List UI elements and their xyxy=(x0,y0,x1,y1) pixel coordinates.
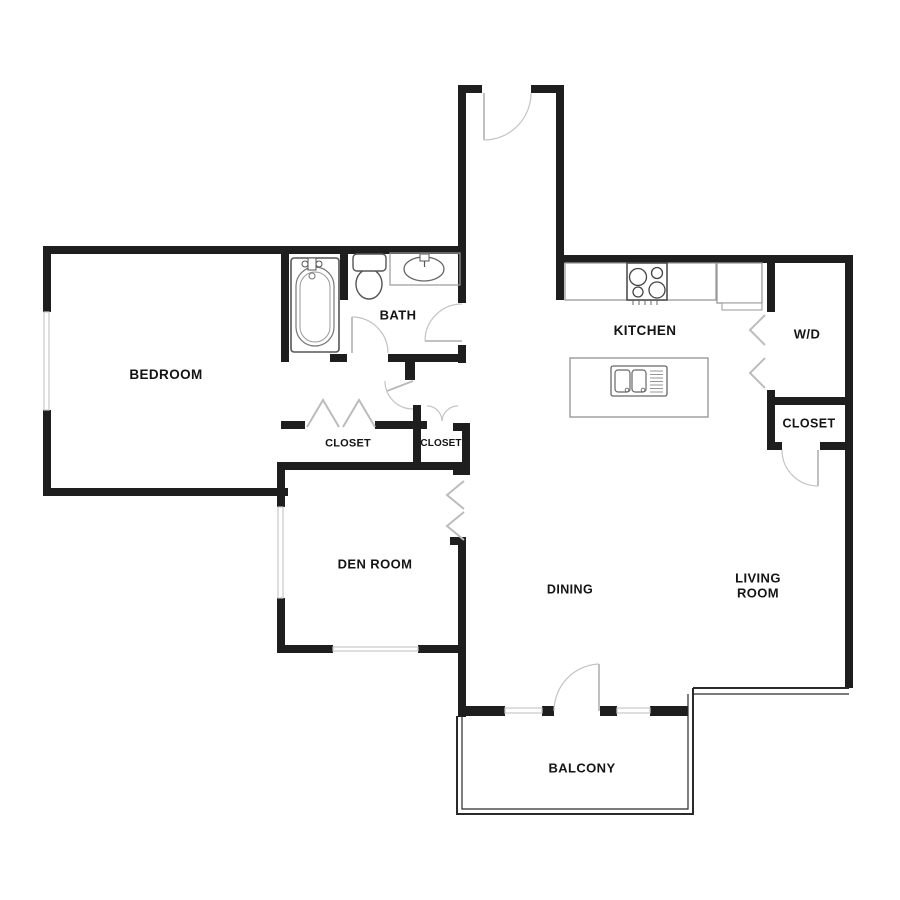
room-label-closet-hall-left: CLOSET xyxy=(325,438,371,451)
closet-left-bifold xyxy=(343,400,375,427)
den-window-west xyxy=(278,507,283,598)
balcony-door xyxy=(554,664,599,711)
toilet-icon xyxy=(353,254,386,299)
dining-window-right xyxy=(617,708,650,713)
room-label-balcony: BALCONY xyxy=(548,760,615,775)
room-label-bedroom: BEDROOM xyxy=(129,367,202,383)
room-label-wd: W/D xyxy=(794,326,820,341)
room-label-kitchen: KITCHEN xyxy=(614,323,677,339)
bath-corridor-door xyxy=(425,304,462,341)
floor-plan: BEDROOM BATH KITCHEN W/D CLOSET CLOSET C… xyxy=(0,0,900,900)
wd-bifold xyxy=(750,358,765,388)
hall-passage-door xyxy=(385,381,413,409)
floor-plan-drawing xyxy=(0,0,900,900)
refrigerator-icon xyxy=(717,263,762,310)
entry-door xyxy=(484,93,531,140)
se-window-wall xyxy=(693,688,849,694)
island-sink-icon xyxy=(611,366,667,396)
room-label-closet-hall-right: CLOSET xyxy=(420,438,461,450)
stove-icon xyxy=(627,263,667,305)
den-window-south xyxy=(333,647,418,651)
room-label-bath: BATH xyxy=(380,307,417,322)
dining-window-left xyxy=(505,708,542,713)
bathroom-sink-icon xyxy=(390,253,460,285)
room-label-living-room: LIVING ROOM xyxy=(722,571,794,602)
bathtub-icon xyxy=(291,258,339,352)
closet-double-door xyxy=(427,406,458,421)
den-bifold xyxy=(447,481,464,509)
closet-left-bifold xyxy=(307,400,339,427)
wd-bifold xyxy=(750,315,765,345)
room-label-closet-living: CLOSET xyxy=(782,417,835,432)
bedroom-window xyxy=(44,312,49,410)
room-label-dining: DINING xyxy=(547,583,593,598)
living-closet-door xyxy=(782,450,818,486)
room-label-den: DEN ROOM xyxy=(338,556,413,571)
walls xyxy=(43,85,853,717)
den-bifold xyxy=(447,512,464,540)
